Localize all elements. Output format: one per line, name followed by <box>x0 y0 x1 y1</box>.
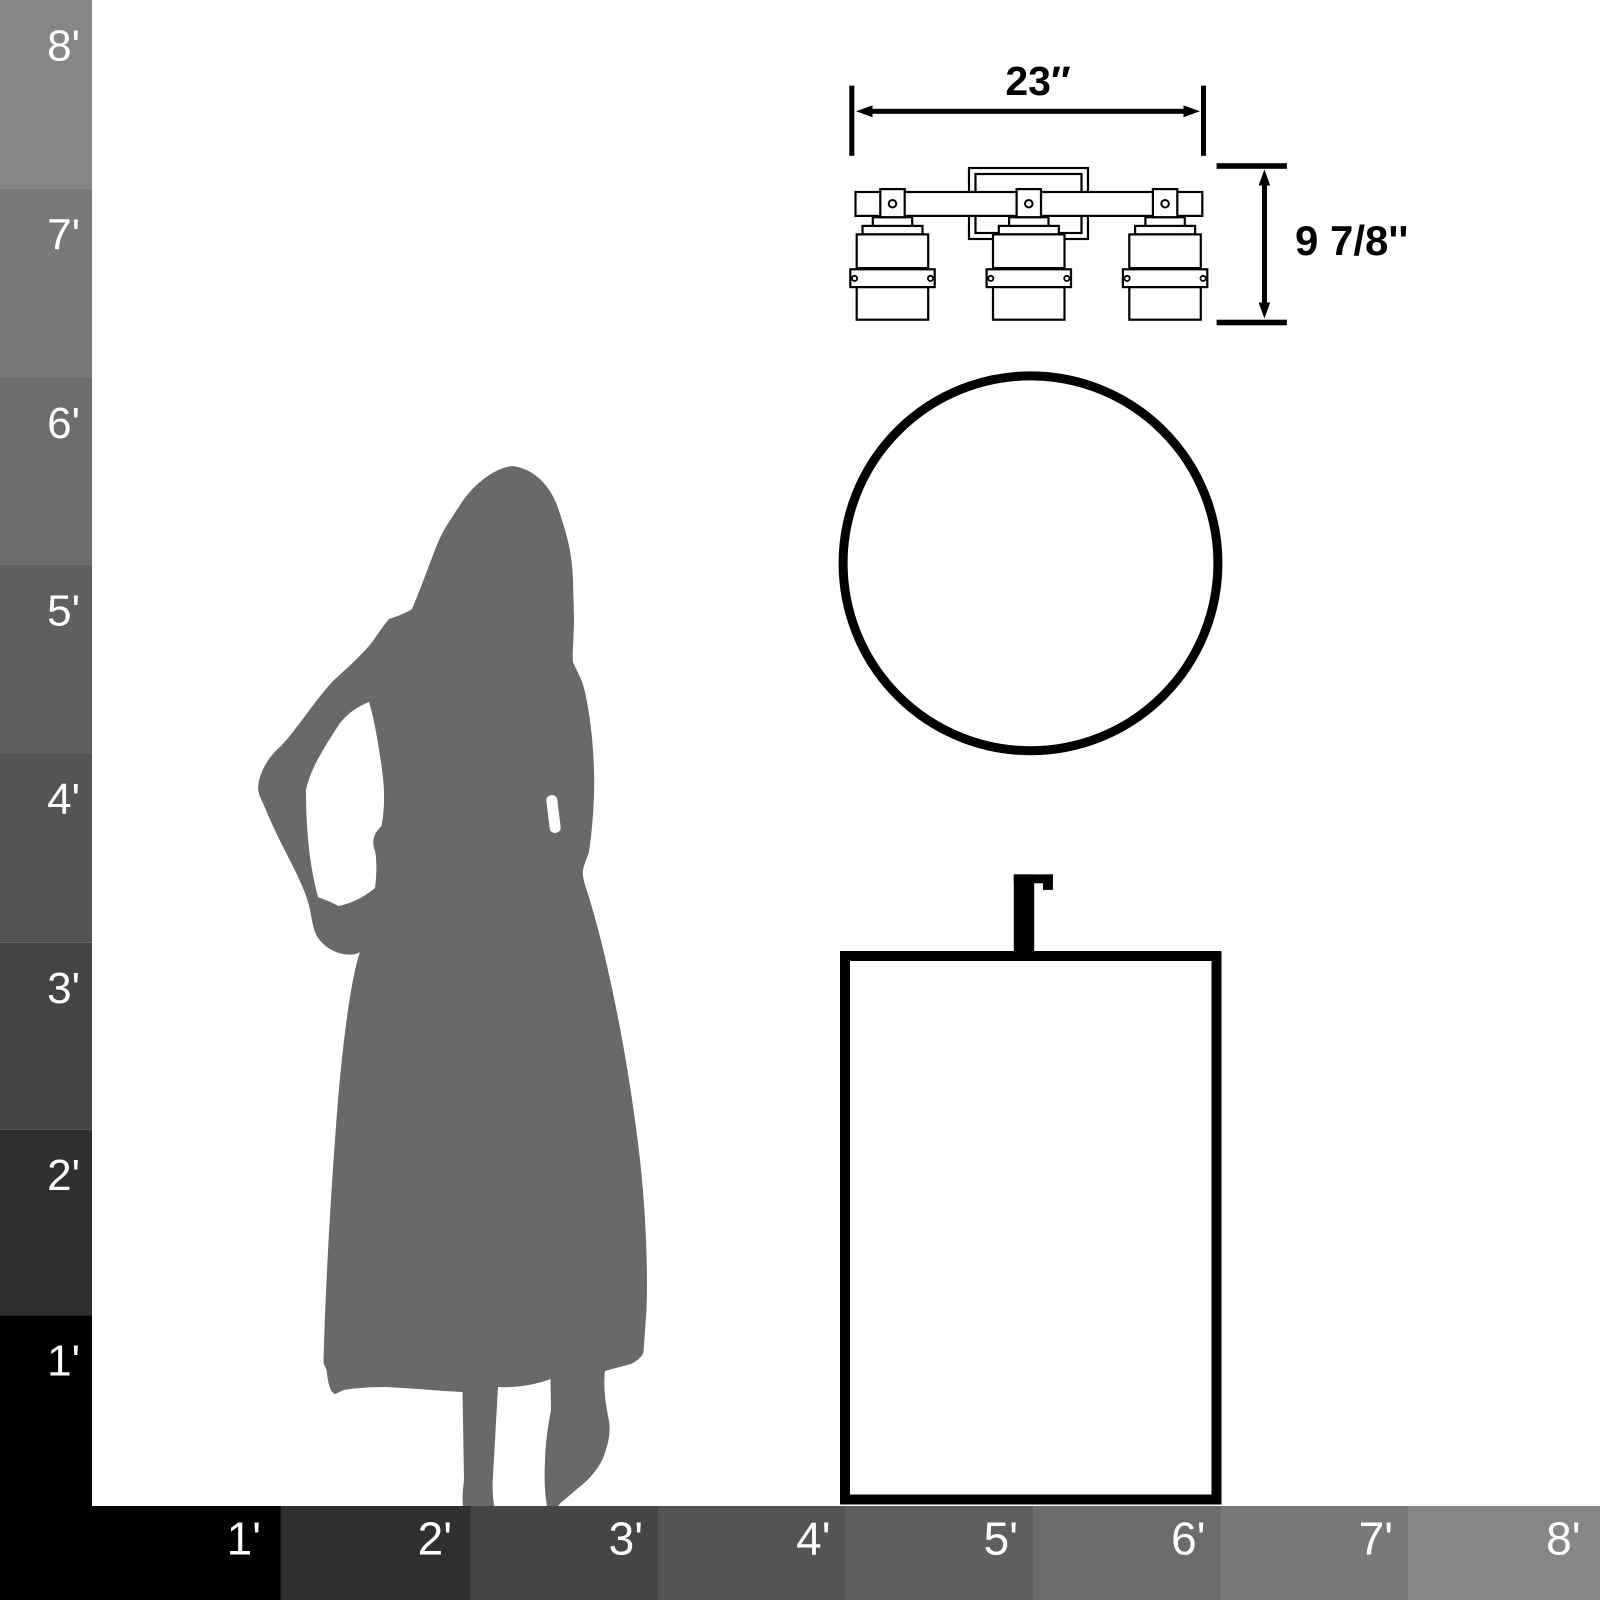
svg-text:2': 2' <box>418 1513 452 1565</box>
svg-text:7': 7' <box>1359 1513 1393 1565</box>
svg-text:2': 2' <box>47 1151 80 1200</box>
svg-text:6': 6' <box>47 399 80 448</box>
svg-text:4': 4' <box>796 1513 830 1565</box>
svg-text:1': 1' <box>227 1513 261 1565</box>
svg-text:7': 7' <box>47 211 80 260</box>
svg-text:9 7/8'': 9 7/8'' <box>1295 217 1408 264</box>
svg-text:5': 5' <box>984 1513 1018 1565</box>
svg-text:23″: 23″ <box>1005 58 1070 104</box>
svg-text:5': 5' <box>47 587 80 636</box>
svg-text:8': 8' <box>47 22 80 71</box>
svg-text:4': 4' <box>47 775 80 824</box>
svg-text:3': 3' <box>609 1513 643 1565</box>
svg-text:1': 1' <box>47 1337 80 1386</box>
svg-text:6': 6' <box>1171 1513 1205 1565</box>
svg-text:8': 8' <box>1546 1513 1580 1565</box>
svg-text:3': 3' <box>47 964 80 1013</box>
